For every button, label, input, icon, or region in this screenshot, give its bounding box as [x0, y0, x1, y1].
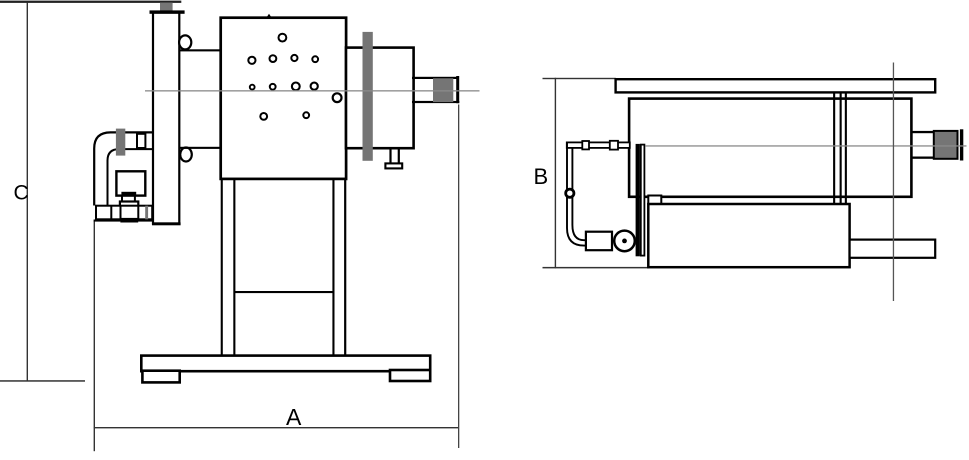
svg-text:B: B [534, 164, 549, 189]
svg-text:A: A [286, 404, 302, 430]
svg-text:C: C [14, 182, 29, 205]
